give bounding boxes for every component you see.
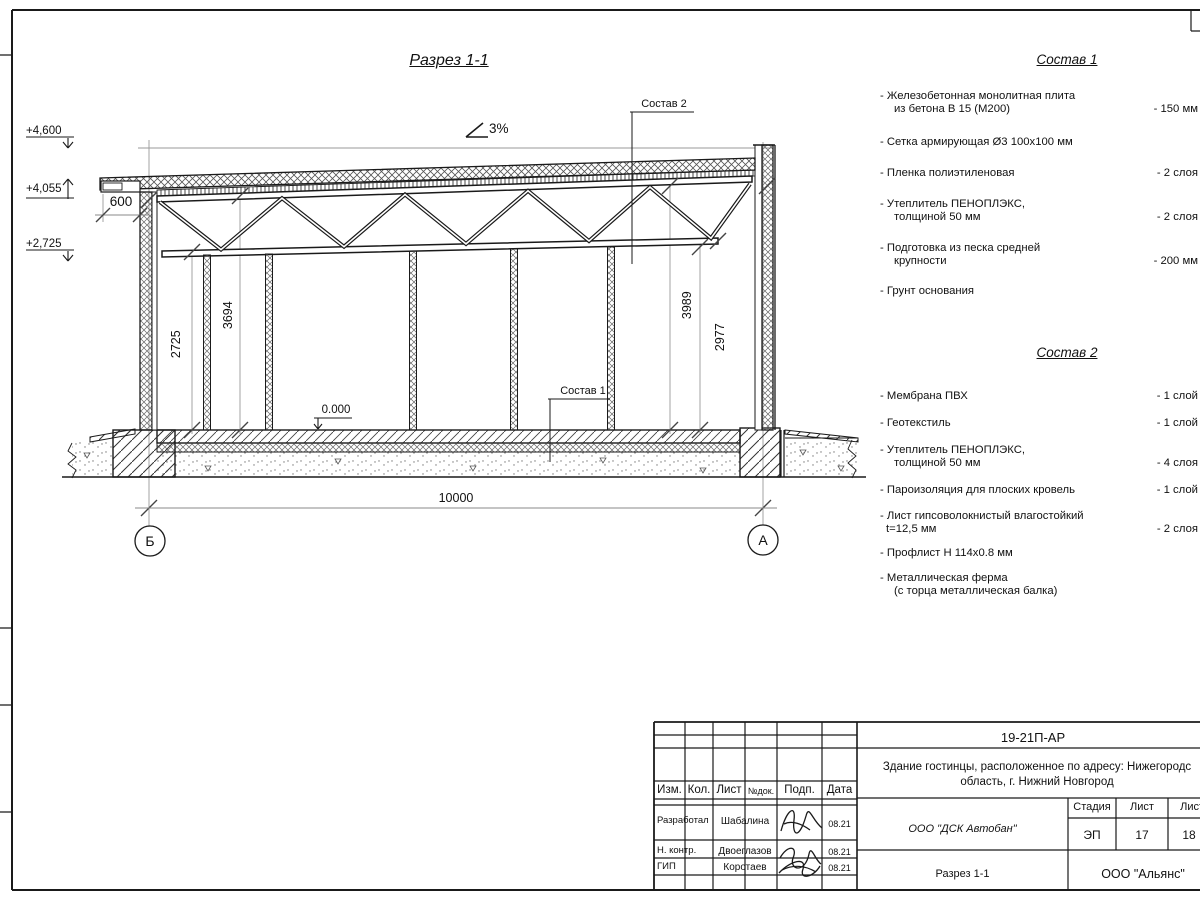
material-item-line: - Лист гипсоволокнистый влагостойкий bbox=[880, 510, 1084, 523]
material-item-line: из бетона В 15 (М200) bbox=[894, 103, 1010, 116]
dim-2977: 2977 bbox=[713, 307, 727, 367]
material-item-line: - Железобетонная монолитная плита bbox=[880, 90, 1075, 103]
material-item-line: крупности bbox=[894, 255, 947, 268]
stamp-name-developed: Шабалина bbox=[713, 816, 777, 828]
stamp-date-gip: 08.21 bbox=[822, 863, 857, 873]
material-item-line: t=12,5 мм bbox=[886, 523, 936, 536]
stamp-col-ndoc: №док. bbox=[745, 786, 777, 796]
elevation-top-label: +4,600 bbox=[26, 125, 62, 138]
elevation-eaves-label: +4,055 bbox=[26, 183, 62, 196]
stamp-sheets-label: Листов bbox=[1168, 801, 1200, 814]
stamp-company: ООО "Альянс" bbox=[1068, 867, 1200, 881]
stamp-sheet-value: 17 bbox=[1116, 829, 1168, 843]
slope-label: 3% bbox=[489, 121, 509, 137]
slope-symbol bbox=[466, 123, 488, 137]
stamp-role-ncontrol: Н. контр. bbox=[657, 846, 696, 857]
material-item-line: - Профлист Н 114х0.8 мм bbox=[880, 547, 1013, 560]
wall-left bbox=[140, 192, 157, 430]
material-item-line: - Металлическая ферма bbox=[880, 572, 1008, 585]
material-item-value: - 2 слоя bbox=[1098, 523, 1198, 536]
material-item-value: - 2 слоя bbox=[1098, 167, 1198, 180]
stamp-name-gip: Коротаев bbox=[713, 862, 777, 874]
stamp-date-ncontrol: 08.21 bbox=[822, 847, 857, 857]
stamp-sheets-value: 18 bbox=[1168, 829, 1200, 843]
elevation-chord-label: +2,725 bbox=[26, 238, 62, 251]
dim-2725: 2725 bbox=[169, 314, 183, 374]
callout-sostav2-label: Состав 2 bbox=[637, 98, 691, 111]
material-item-line: (с торца металлическая балка) bbox=[894, 585, 1057, 598]
stamp-col-kol: Кол. bbox=[685, 784, 713, 797]
material-item-value: - 1 слой bbox=[1098, 417, 1198, 430]
material-item-line: толщиной 50 мм bbox=[894, 457, 981, 470]
material-item-line: - Мембрана ПВХ bbox=[880, 390, 968, 403]
material-item-line: толщиной 50 мм bbox=[894, 211, 981, 224]
stamp-col-data: Дата bbox=[822, 784, 857, 797]
stamp-col-list: Лист bbox=[713, 784, 745, 797]
frame-fold-marks bbox=[0, 10, 1200, 812]
stamp-date-developed: 08.21 bbox=[822, 819, 857, 829]
stamp-stage-value: ЭП bbox=[1068, 829, 1116, 843]
stamp-name-ncontrol: Двоеглазов bbox=[713, 846, 777, 858]
stamp-col-podp: Подп. bbox=[777, 784, 822, 797]
drawing-title: Разрез 1-1 bbox=[379, 52, 519, 70]
stamp-organization: ООО "ДСК Автобан" bbox=[857, 823, 1068, 836]
level-0000-label: 0.000 bbox=[316, 404, 356, 417]
material-item-value: - 150 мм bbox=[1098, 103, 1198, 116]
stamp-col-izm: Изм. bbox=[654, 784, 685, 797]
material-item-value: - 2 слоя bbox=[1098, 211, 1198, 224]
stamp-project-line1: Здание гостинцы, расположенное по адресу… bbox=[857, 761, 1200, 774]
drawing-sheet: Разрез 1-1 3% +4,600 +4,055 +2,725 600 2… bbox=[0, 0, 1200, 900]
material-item-line: - Геотекстиль bbox=[880, 417, 951, 430]
axis-label-a: А bbox=[748, 532, 778, 548]
interior-posts bbox=[204, 247, 615, 430]
overhang-dim-label: 600 bbox=[101, 194, 141, 210]
stamp-stage-label: Стадия bbox=[1068, 801, 1116, 814]
stamp-role-gip: ГИП bbox=[657, 862, 676, 873]
material-item-value: - 1 слой bbox=[1098, 484, 1198, 497]
dim-3694: 3694 bbox=[221, 285, 235, 345]
dim-3989: 3989 bbox=[680, 275, 694, 335]
material-item-value: - 1 слой bbox=[1098, 390, 1198, 403]
material-item-line: - Утеплитель ПЕНОПЛЭКС, bbox=[880, 444, 1025, 457]
callout-sostav1-label: Состав 1 bbox=[556, 385, 610, 398]
stamp-sheet-label: Лист bbox=[1116, 801, 1168, 814]
stamp-drawing-name: Разрез 1-1 bbox=[857, 868, 1068, 881]
sostav1-title: Состав 1 bbox=[1007, 52, 1127, 68]
material-item-value: - 4 слоя bbox=[1098, 457, 1198, 470]
material-item-line: - Утеплитель ПЕНОПЛЭКС, bbox=[880, 198, 1025, 211]
axis-label-b: Б bbox=[135, 533, 165, 549]
material-item-line: - Подготовка из песка средней bbox=[880, 242, 1040, 255]
material-item-value: - 200 мм bbox=[1098, 255, 1198, 268]
floor-layers bbox=[157, 430, 740, 477]
axis-bubbles bbox=[135, 525, 778, 556]
stamp-project-line2: область, г. Нижний Новгород bbox=[857, 776, 1200, 789]
material-item-line: - Пароизоляция для плоских кровель bbox=[880, 484, 1075, 497]
signatures bbox=[779, 811, 822, 877]
stamp-role-developed: Разработал bbox=[657, 816, 709, 827]
stamp-doc-code: 19-21П-АР bbox=[857, 731, 1200, 746]
level-mark bbox=[314, 418, 352, 429]
material-item-line: - Пленка полиэтиленовая bbox=[880, 167, 1014, 180]
material-item-line: - Грунт основания bbox=[880, 285, 974, 298]
material-item-line: - Сетка армирующая Ø3 100х100 мм bbox=[880, 136, 1073, 149]
sostav2-title: Состав 2 bbox=[1007, 345, 1127, 361]
dim-10000: 10000 bbox=[426, 491, 486, 505]
wall-right bbox=[753, 145, 775, 430]
